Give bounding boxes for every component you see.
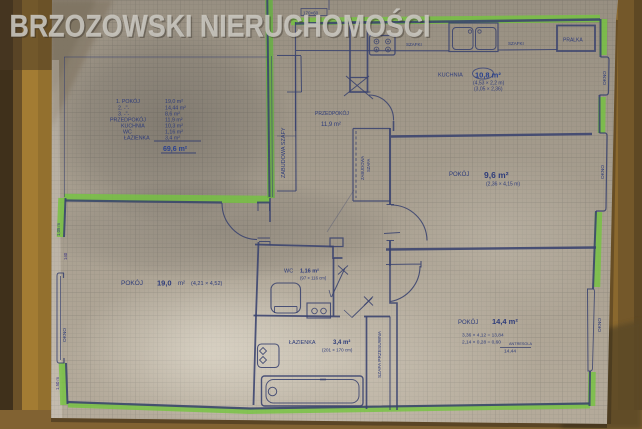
- svg-text:SZAFA: SZAFA: [366, 159, 371, 172]
- svg-text:ANTRESOLA: ANTRESOLA: [509, 342, 532, 346]
- svg-text:69,6 m²: 69,6 m²: [163, 146, 188, 153]
- svg-text:1,50 m: 1,50 m: [55, 376, 60, 390]
- svg-text:SZAFA PRZESUWNA: SZAFA PRZESUWNA: [377, 330, 383, 378]
- svg-text:(2,36 × 4,15 m): (2,36 × 4,15 m): [486, 182, 520, 188]
- svg-text:9,6 m²: 9,6 m²: [484, 170, 509, 180]
- svg-text:2,14 × 0,28 = 0,60: 2,14 × 0,28 = 0,60: [462, 340, 501, 346]
- svg-text:WC: WC: [284, 269, 293, 275]
- svg-text:ŁAZIENKA: ŁAZIENKA: [289, 340, 316, 346]
- svg-text:BRZOZOWSKI NIERUCHOMOŚCI: BRZOZOWSKI NIERUCHOMOŚCI: [10, 7, 431, 43]
- svg-text:11,9 m²: 11,9 m²: [321, 122, 341, 128]
- svg-text:m²: m²: [178, 281, 185, 287]
- svg-text:OKNO: OKNO: [62, 328, 68, 342]
- svg-text:1,05 m: 1,05 m: [56, 222, 61, 236]
- svg-text:(4,21 × 4,52): (4,21 × 4,52): [191, 281, 223, 287]
- svg-text:(201 × 170 cm): (201 × 170 cm): [322, 348, 353, 353]
- svg-text:3,4 m²: 3,4 m²: [333, 339, 350, 346]
- svg-text:SZAFKI: SZAFKI: [508, 41, 524, 46]
- svg-text:ZABUDOWA: ZABUDOWA: [360, 156, 365, 180]
- svg-text:POKÓJ: POKÓJ: [458, 319, 478, 326]
- svg-text:PRZEDPOKÓJ: PRZEDPOKÓJ: [315, 110, 349, 117]
- svg-text:POKÓJ: POKÓJ: [449, 171, 469, 178]
- svg-text:(97 × 116 cm): (97 × 116 cm): [300, 276, 327, 281]
- svg-text:14,4 m²: 14,4 m²: [492, 317, 518, 326]
- svg-text:19,0: 19,0: [157, 279, 172, 288]
- svg-text:ZABUDOWA SZAFY: ZABUDOWA SZAFY: [281, 127, 287, 178]
- svg-text:PRALKA: PRALKA: [563, 38, 583, 44]
- svg-text:(3,05 × 2,36): (3,05 × 2,36): [474, 87, 503, 93]
- svg-text:POKÓJ: POKÓJ: [121, 278, 143, 287]
- svg-text:1,16 m²: 1,16 m²: [300, 268, 319, 275]
- svg-text:14,44: 14,44: [504, 349, 516, 355]
- svg-text:PRZEDPOKÓJ: PRZEDPOKÓJ: [110, 117, 146, 124]
- svg-text:OKNO: OKNO: [602, 71, 608, 85]
- svg-text:OKNO: OKNO: [600, 165, 606, 179]
- svg-text:OKNO: OKNO: [597, 318, 603, 332]
- svg-text:19,0 m²: 19,0 m²: [165, 99, 183, 105]
- svg-text:KUCHNIA: KUCHNIA: [438, 73, 463, 79]
- svg-text:1. POKÓJ: 1. POKÓJ: [116, 98, 140, 105]
- svg-text:140: 140: [63, 252, 68, 260]
- svg-text:ŁAZIENKA: ŁAZIENKA: [124, 136, 150, 142]
- svg-text:3,36 × 4,12 = 13,84: 3,36 × 4,12 = 13,84: [462, 333, 504, 339]
